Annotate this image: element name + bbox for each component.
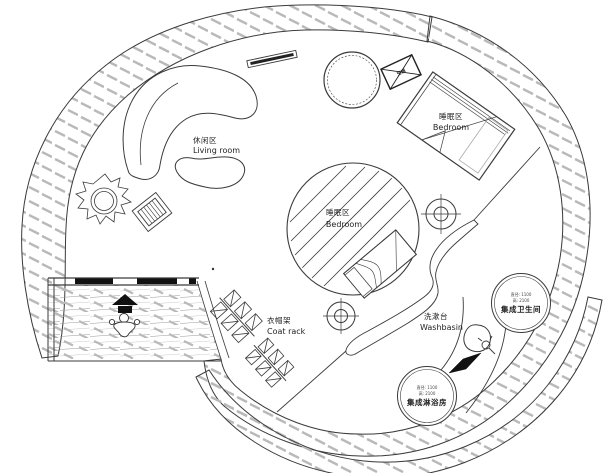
divider-line-lower-left: [277, 351, 346, 412]
bedroom-upper-label-en: Bedroom: [433, 123, 469, 132]
washbasin-label-en: Washbasin: [420, 323, 463, 332]
washbasin-label: 洗漱台 Washbasin: [420, 311, 463, 332]
bedroom-upper-label-zh: 睡眠区: [439, 112, 463, 121]
fixture-symbol-lower: [323, 298, 359, 334]
striped-stool: [132, 193, 172, 232]
flow-arrow: [449, 353, 481, 373]
ac-unit: 空调: [381, 55, 421, 89]
fixture-symbol-upper: [421, 194, 461, 234]
corridor-wall-left: [441, 297, 463, 370]
entry-wall: [48, 278, 199, 285]
shower-pod-spec-diameter: 直径: 1100: [417, 384, 438, 390]
coat-rack-label-zh: 衣帽架: [267, 315, 291, 325]
coffee-table: [175, 157, 244, 189]
living-room-label-en: Living room: [193, 146, 240, 155]
living-room-label-zh: 休闲区: [193, 135, 217, 145]
potted-plant: [76, 174, 131, 224]
coat-rack-group-1: [208, 287, 267, 347]
shower-pod: 直径: 1100 高: 2100 集成淋浴房: [398, 367, 457, 426]
floor-plan-drawing: 休闲区 Living room 空调 睡眠区 Bedroom 睡眠区: [0, 0, 611, 473]
door-panel: [75, 279, 113, 285]
coat-rack-group-2: [243, 335, 297, 391]
wall-shelf: [247, 50, 297, 67]
door-panel: [137, 279, 177, 285]
toilet-pod: 直径: 1100 高: 2100 集成卫生间: [492, 274, 551, 333]
living-room-label: 休闲区 Living room: [193, 135, 240, 155]
shower-pod-name: 集成淋浴房: [406, 397, 447, 407]
door-panel: [189, 279, 196, 285]
toilet-pod-spec-diameter: 直径: 1100: [511, 291, 532, 297]
entrance-terrace: [48, 278, 229, 361]
toilet-pod-spec-height: 高: 2100: [513, 297, 530, 303]
reference-dot: [212, 268, 214, 270]
bedroom-center-label-zh: 睡眠区: [326, 208, 350, 217]
shower-pod-spec-height: 高: 2100: [419, 390, 436, 396]
coat-rack-label: 衣帽架 Coat rack: [267, 315, 306, 336]
toilet-pod-name: 集成卫生间: [500, 304, 541, 314]
bedroom-center-circle: 睡眠区 Bedroom: [287, 163, 419, 298]
round-table: [324, 52, 380, 108]
floor-plan-page: 休闲区 Living room 空调 睡眠区 Bedroom 睡眠区: [0, 0, 611, 473]
bedroom-center-label-en: Bedroom: [326, 220, 362, 229]
sofa-seam-line: [140, 83, 178, 165]
washbasin-symbol: [464, 325, 495, 354]
coat-rack-label-en: Coat rack: [267, 327, 306, 336]
washbasin-label-zh: 洗漱台: [424, 311, 448, 321]
